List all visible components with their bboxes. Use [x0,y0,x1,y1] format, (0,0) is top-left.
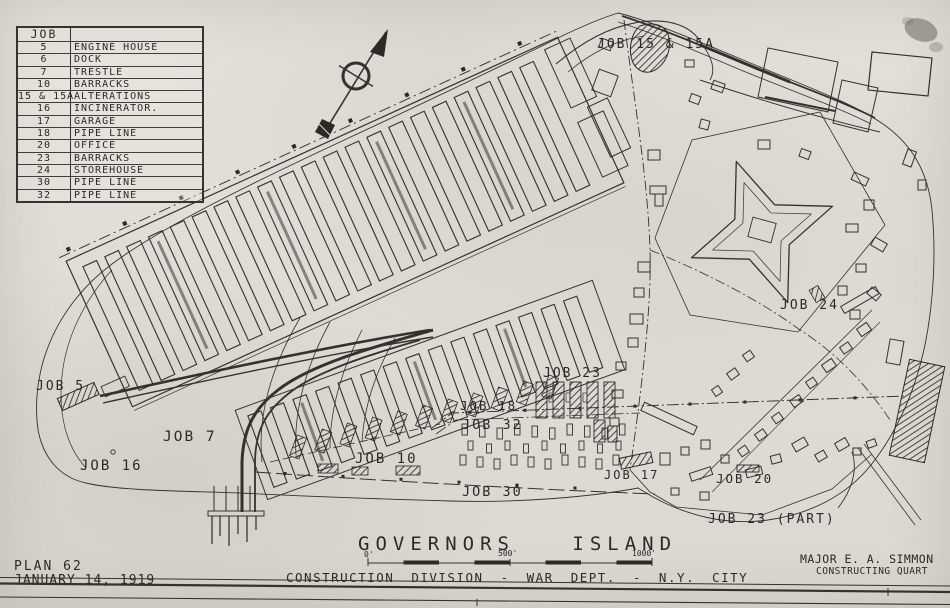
map-label-job18: JOB 18 [460,398,517,413]
legend-row: 17GARAGE [17,115,203,127]
scale-tick-1000: 1000' [632,549,656,558]
map-label-job30: JOB 30 [462,484,523,500]
map-label-job15: JOB 15 & 15A [597,37,715,52]
map-label-job32: JOB 32 [462,417,523,433]
map-label-job5: JOB 5 [36,379,85,394]
north-arrow-icon [315,29,388,139]
trestle-tracks [100,330,433,512]
legend-row: 16INCINERATOR. [17,103,203,115]
legend-row: 30PIPE LINE [17,177,203,189]
officer-title: CONSTRUCTING QUART [816,566,928,577]
legend-row: 32PIPE LINE [17,189,203,202]
job17-garage [619,452,653,469]
map-label-job17: JOB 17 [604,468,659,482]
legend-row: 5ENGINE HOUSE [17,42,203,54]
title-block: GOVERNORS ISLAND 0' 500' 1000' CONSTRUCT… [0,533,950,606]
legend-row: 15 & 15AALTERATIONS [17,91,203,103]
map-label-job23-part: JOB 23 (PART) [708,512,836,527]
scale-tick-500: 500' [498,549,517,558]
map-label-job16: JOB 16 [80,458,143,474]
job23-part-leader [838,452,854,508]
legend-row: 6DOCK [17,54,203,66]
legend-row: 24STOREHOUSE [17,164,203,176]
legend-header-job: JOB [17,27,71,42]
legend-row: 20OFFICE [17,140,203,152]
incinerator-mark [111,450,115,454]
legend-table: JOB 5ENGINE HOUSE 6DOCK 7TRESTLE 10BARRA… [16,26,204,203]
legend-row: 10BARRACKS [17,78,203,90]
scale-tick-0: 0' [364,550,374,559]
map-label-job24: JOB 24 [780,298,839,313]
legend-row: 18PIPE LINE [17,128,203,140]
small-buildings [587,38,926,500]
division-title: CONSTRUCTION DIVISION - WAR DEPT. - N.Y.… [286,570,748,585]
map-label-job23: JOB 23 [543,366,602,381]
legend-header-row: JOB [17,27,203,42]
officer-name: MAJOR E. A. SIMMON [800,552,934,566]
legend-row: 23BARRACKS [17,152,203,164]
plan-sheet: JOB 5 JOB 7 JOB 16 JOB 10 JOB 18 JOB 32 … [0,0,950,608]
legend-row: 7TRESTLE [17,66,203,78]
island-title: GOVERNORS ISLAND [358,533,677,555]
map-label-job10: JOB 10 [355,451,418,467]
northeast-piers [758,48,932,132]
map-label-job7: JOB 7 [163,429,217,445]
scan-stains [901,14,943,52]
map-label-job20: JOB 20 [716,471,773,486]
plan-number: PLAN 62 [14,559,83,574]
